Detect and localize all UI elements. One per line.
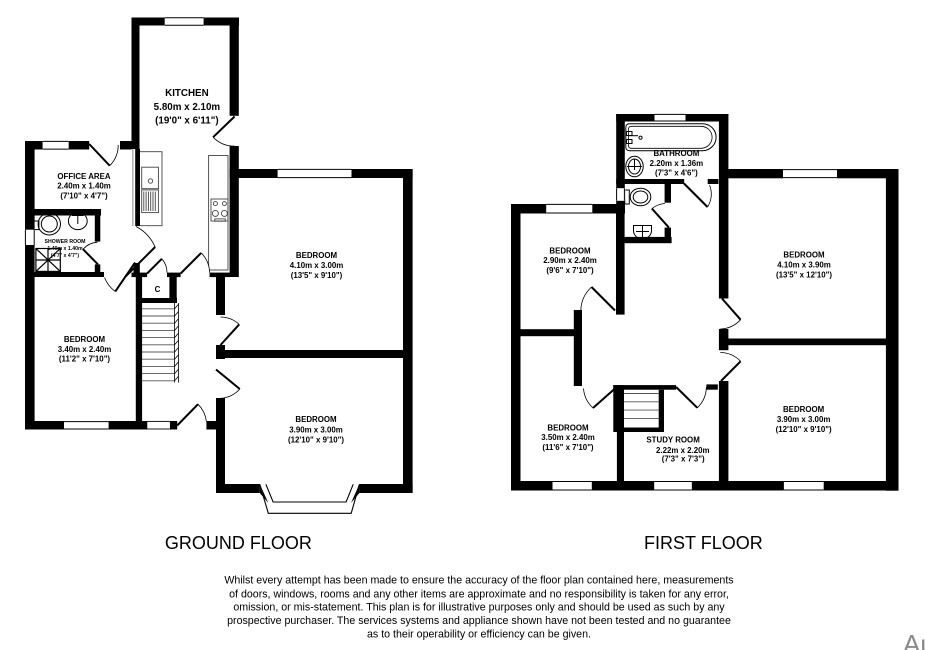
svg-text:(4'7" x 4'7"): (4'7" x 4'7") — [51, 253, 79, 259]
svg-text:(11'2" x 7'10"): (11'2" x 7'10") — [59, 355, 111, 364]
svg-text:KITCHEN: KITCHEN — [165, 88, 209, 99]
svg-text:2.22m x 2.20m: 2.22m x 2.20m — [656, 446, 710, 455]
svg-text:(11'6" x 7'10"): (11'6" x 7'10") — [542, 443, 594, 452]
svg-text:5.80m x 2.10m: 5.80m x 2.10m — [154, 102, 221, 113]
svg-text:3.40m x 2.40m: 3.40m x 2.40m — [58, 345, 112, 354]
svg-text:(12'10" x 9'10"): (12'10" x 9'10") — [776, 425, 832, 434]
svg-text:(9'6" x 7'10"): (9'6" x 7'10") — [546, 266, 594, 275]
svg-text:2.90m x 2.40m: 2.90m x 2.40m — [543, 256, 597, 265]
svg-text:1.40m x 1.40m: 1.40m x 1.40m — [47, 246, 83, 252]
svg-text:(13'5" x 12'10"): (13'5" x 12'10") — [776, 271, 832, 280]
svg-text:(12'10" x 9'10"): (12'10" x 9'10") — [288, 436, 344, 445]
svg-text:OFFICE AREA: OFFICE AREA — [57, 172, 110, 181]
svg-text:BEDROOM: BEDROOM — [64, 335, 106, 344]
svg-text:Whilst every attempt has been: Whilst every attempt has been made to en… — [224, 574, 733, 586]
svg-text:BEDROOM: BEDROOM — [295, 415, 337, 424]
svg-text:3.90m x 3.00m: 3.90m x 3.00m — [289, 425, 343, 434]
svg-text:3.90m x 3.00m: 3.90m x 3.00m — [777, 415, 831, 424]
svg-text:(19'0" x 6'11"): (19'0" x 6'11") — [155, 115, 219, 126]
svg-text:BEDROOM: BEDROOM — [783, 405, 825, 414]
svg-text:(7'10" x 4'7"): (7'10" x 4'7") — [60, 191, 108, 200]
svg-text:2.40m x 1.40m: 2.40m x 1.40m — [57, 182, 111, 191]
svg-text:C: C — [155, 285, 161, 294]
svg-text:as to their operability or eff: as to their operability or efficiency ca… — [367, 628, 591, 640]
svg-text:2.20m x 1.36m: 2.20m x 1.36m — [650, 159, 704, 168]
svg-text:STUDY ROOM: STUDY ROOM — [646, 436, 700, 445]
svg-text:BEDROOM: BEDROOM — [549, 247, 591, 256]
svg-text:SHOWER ROOM: SHOWER ROOM — [45, 239, 86, 245]
svg-text:(7'3" x 4'6"): (7'3" x 4'6") — [655, 169, 698, 178]
svg-text:omission, or mis-statement. Th: omission, or mis-statement. This plan is… — [233, 602, 725, 614]
svg-text:4.10m x 3.90m: 4.10m x 3.90m — [777, 261, 831, 270]
svg-text:Au: Au — [903, 629, 925, 650]
svg-text:BATHROOM: BATHROOM — [653, 149, 699, 158]
svg-text:FIRST FLOOR: FIRST FLOOR — [644, 533, 763, 553]
svg-text:BEDROOM: BEDROOM — [296, 251, 338, 260]
svg-text:BEDROOM: BEDROOM — [547, 423, 589, 432]
svg-text:(7'3" x 7'3"): (7'3" x 7'3") — [662, 455, 705, 464]
svg-text:4.10m x 3.00m: 4.10m x 3.00m — [290, 261, 344, 270]
svg-text:GROUND FLOOR: GROUND FLOOR — [165, 533, 312, 553]
svg-text:(13'5" x 9'10"): (13'5" x 9'10") — [291, 271, 343, 280]
svg-text:prospective purchaser. The ser: prospective purchaser. The services syst… — [227, 615, 731, 627]
svg-text:BEDROOM: BEDROOM — [783, 251, 825, 260]
svg-text:3.50m x 2.40m: 3.50m x 2.40m — [541, 433, 595, 442]
svg-text:of doors, windows, rooms and a: of doors, windows, rooms and any other i… — [229, 588, 729, 600]
